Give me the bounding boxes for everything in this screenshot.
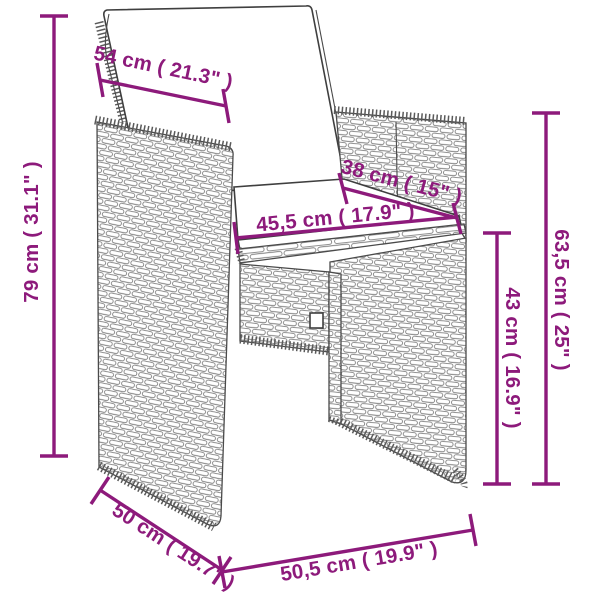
dim-armrest-height-label: 63,5 cm ( 25" ) [550, 229, 573, 371]
front-right-leg [329, 272, 341, 424]
chair-diagram-svg: 79 cm ( 31.1" ) 54 cm ( 21.3" ) 38 cm ( … [0, 0, 600, 600]
apron-clip [310, 313, 323, 328]
right-side-panel-lower [330, 238, 466, 483]
left-side-panel [97, 122, 233, 526]
dim-overall-height-label: 79 cm ( 31.1" ) [20, 161, 43, 303]
dimension-diagram: 79 cm ( 31.1" ) 54 cm ( 21.3" ) 38 cm ( … [0, 0, 600, 600]
dim-overall-height: 79 cm ( 31.1" ) [20, 16, 68, 456]
chair-drawing [95, 6, 466, 527]
dim-seat-height-label: 43 cm ( 16.9" ) [501, 287, 524, 429]
dim-seat-height: 43 cm ( 16.9" ) [483, 233, 524, 484]
dim-overall-width-label: 50,5 cm ( 19.9" ) [279, 537, 440, 586]
front-apron [240, 264, 329, 352]
dim-armrest-height: 63,5 cm ( 25" ) [532, 113, 573, 484]
dim-overall-width: 50,5 cm ( 19.9" ) [219, 514, 476, 588]
